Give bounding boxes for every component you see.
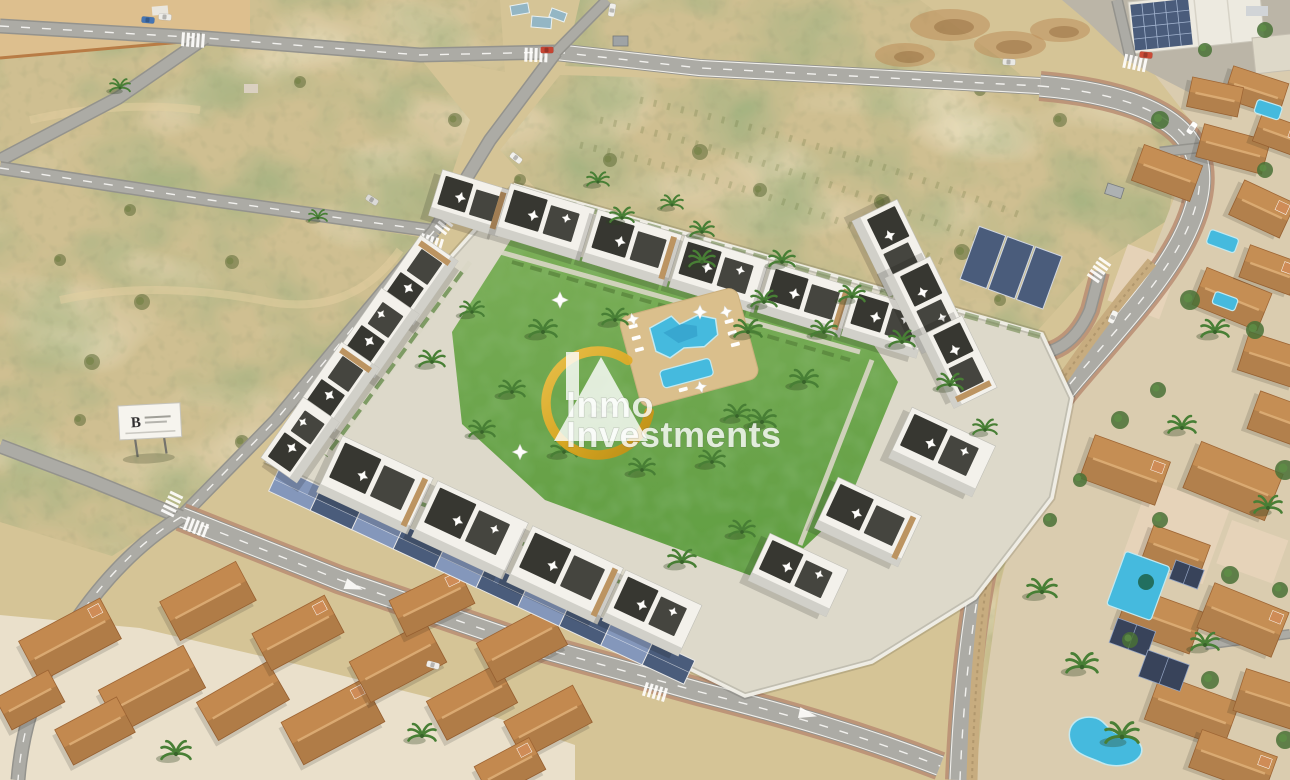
aerial-photo-canvas: B Inmo Investments	[0, 0, 1290, 780]
watermark-line2: Investments	[566, 414, 782, 455]
aerial-photo-of-residential-development: B Inmo Investments	[0, 0, 1290, 780]
